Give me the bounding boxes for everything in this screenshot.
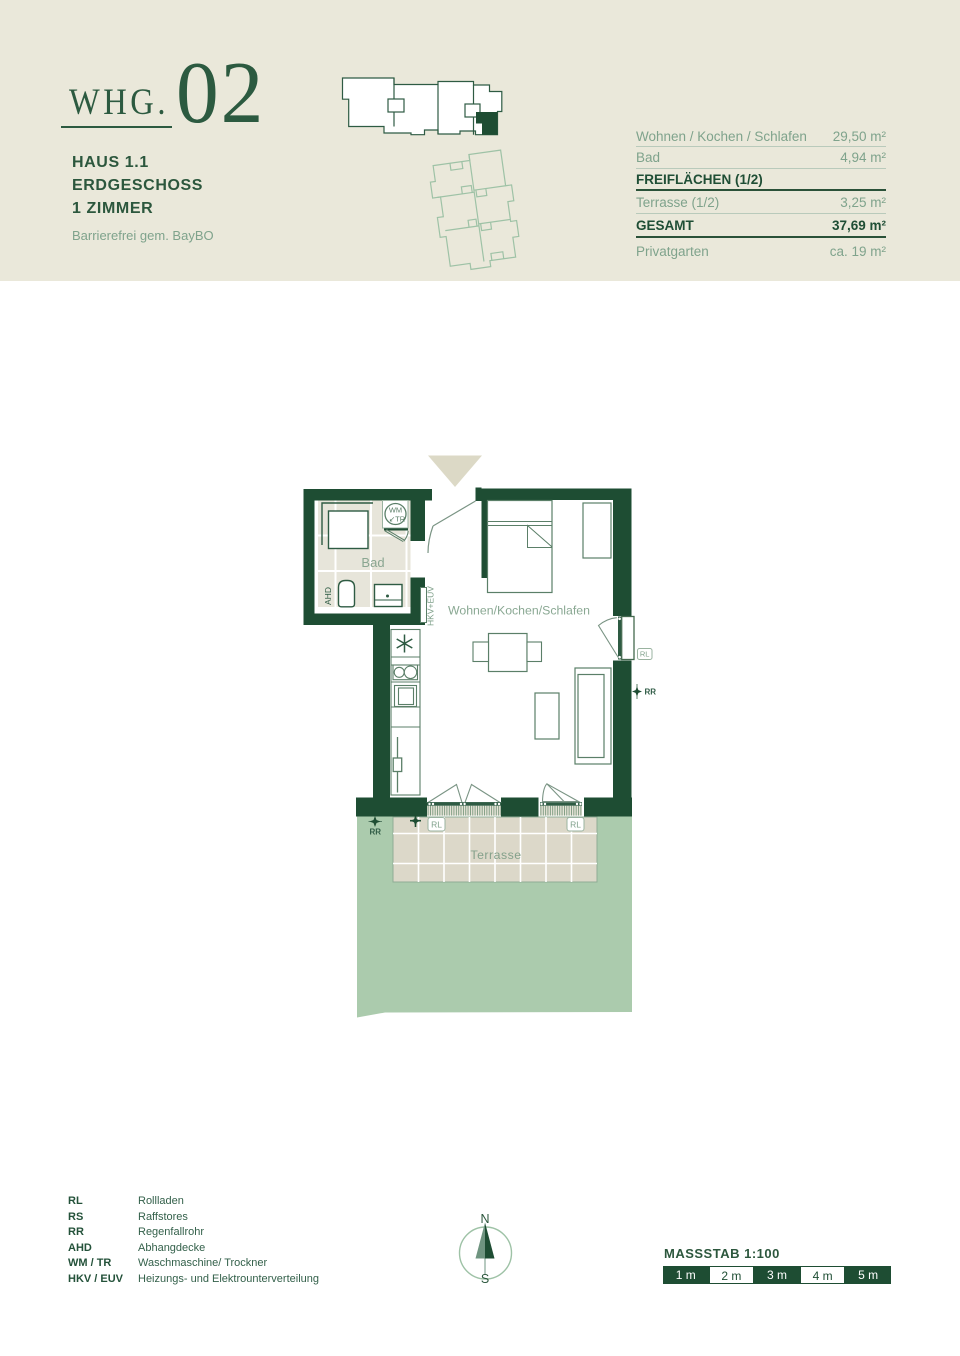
svg-text:WM: WM: [389, 506, 402, 515]
svg-text:RR: RR: [370, 828, 382, 837]
svg-text:RL: RL: [640, 650, 650, 659]
svg-text:RR: RR: [645, 688, 657, 697]
svg-text:RL: RL: [570, 820, 581, 830]
svg-text:S: S: [481, 1272, 489, 1286]
svg-text:Terrasse: Terrasse: [470, 848, 521, 862]
svg-text:AHD: AHD: [323, 587, 333, 605]
svg-text:HKV+EUV: HKV+EUV: [426, 586, 436, 626]
svg-text:N: N: [480, 1212, 489, 1226]
svg-text:Bad: Bad: [361, 555, 384, 570]
svg-text:RL: RL: [431, 820, 442, 830]
svg-text:Wohnen/Kochen/Schlafen: Wohnen/Kochen/Schlafen: [448, 604, 590, 618]
svg-text:↙TR: ↙TR: [389, 515, 406, 524]
